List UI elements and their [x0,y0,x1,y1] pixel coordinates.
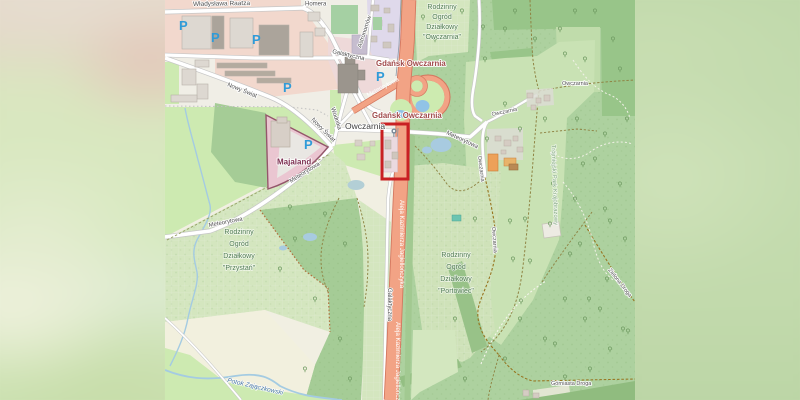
svg-text:Rodzinny: Rodzinny [224,229,254,236]
svg-text:Działkowy: Działkowy [426,24,458,31]
svg-text:Homera: Homera [305,2,327,8]
svg-text:Galaktyczna: Galaktyczna [386,288,392,322]
svg-text:Aleja Kazimierza Jagiellończyk: Aleja Kazimierza Jagiellończyka [398,200,405,289]
svg-text:Ogród: Ogród [229,241,249,248]
svg-text:Działkowy: Działkowy [223,253,255,260]
svg-text:Ogród: Ogród [432,14,452,21]
svg-text:P: P [283,80,292,95]
svg-text:Aleja Kazimierza Jagiellończyk: Aleja Kazimierza Jagiellończyka [394,322,401,400]
svg-text:Gdańsk Owczarnia: Gdańsk Owczarnia [372,111,442,120]
svg-text:P: P [376,69,385,84]
svg-text:Owczarnia: Owczarnia [562,81,589,87]
svg-text:"Owczarnia": "Owczarnia" [423,34,462,41]
svg-text:Rodzinny: Rodzinny [441,252,471,259]
svg-text:P: P [304,137,313,152]
svg-text:Owczarnia: Owczarnia [345,121,385,131]
svg-text:Władysława Raatza: Władysława Raatza [193,0,251,8]
svg-text:"Portowiec": "Portowiec" [438,288,474,295]
svg-text:Rodzinny: Rodzinny [427,4,457,11]
svg-text:Gdańsk Owczarnia: Gdańsk Owczarnia [376,59,446,68]
svg-text:Działkowy: Działkowy [440,276,472,283]
svg-text:P: P [211,30,220,45]
svg-text:P: P [179,18,188,33]
svg-text:Górniasta Droga: Górniasta Droga [551,381,592,387]
svg-text:Ogród: Ogród [446,264,466,271]
svg-text:"Przystań": "Przystań" [223,265,256,272]
svg-text:P: P [252,32,261,47]
svg-text:Majaland: Majaland [277,158,311,167]
